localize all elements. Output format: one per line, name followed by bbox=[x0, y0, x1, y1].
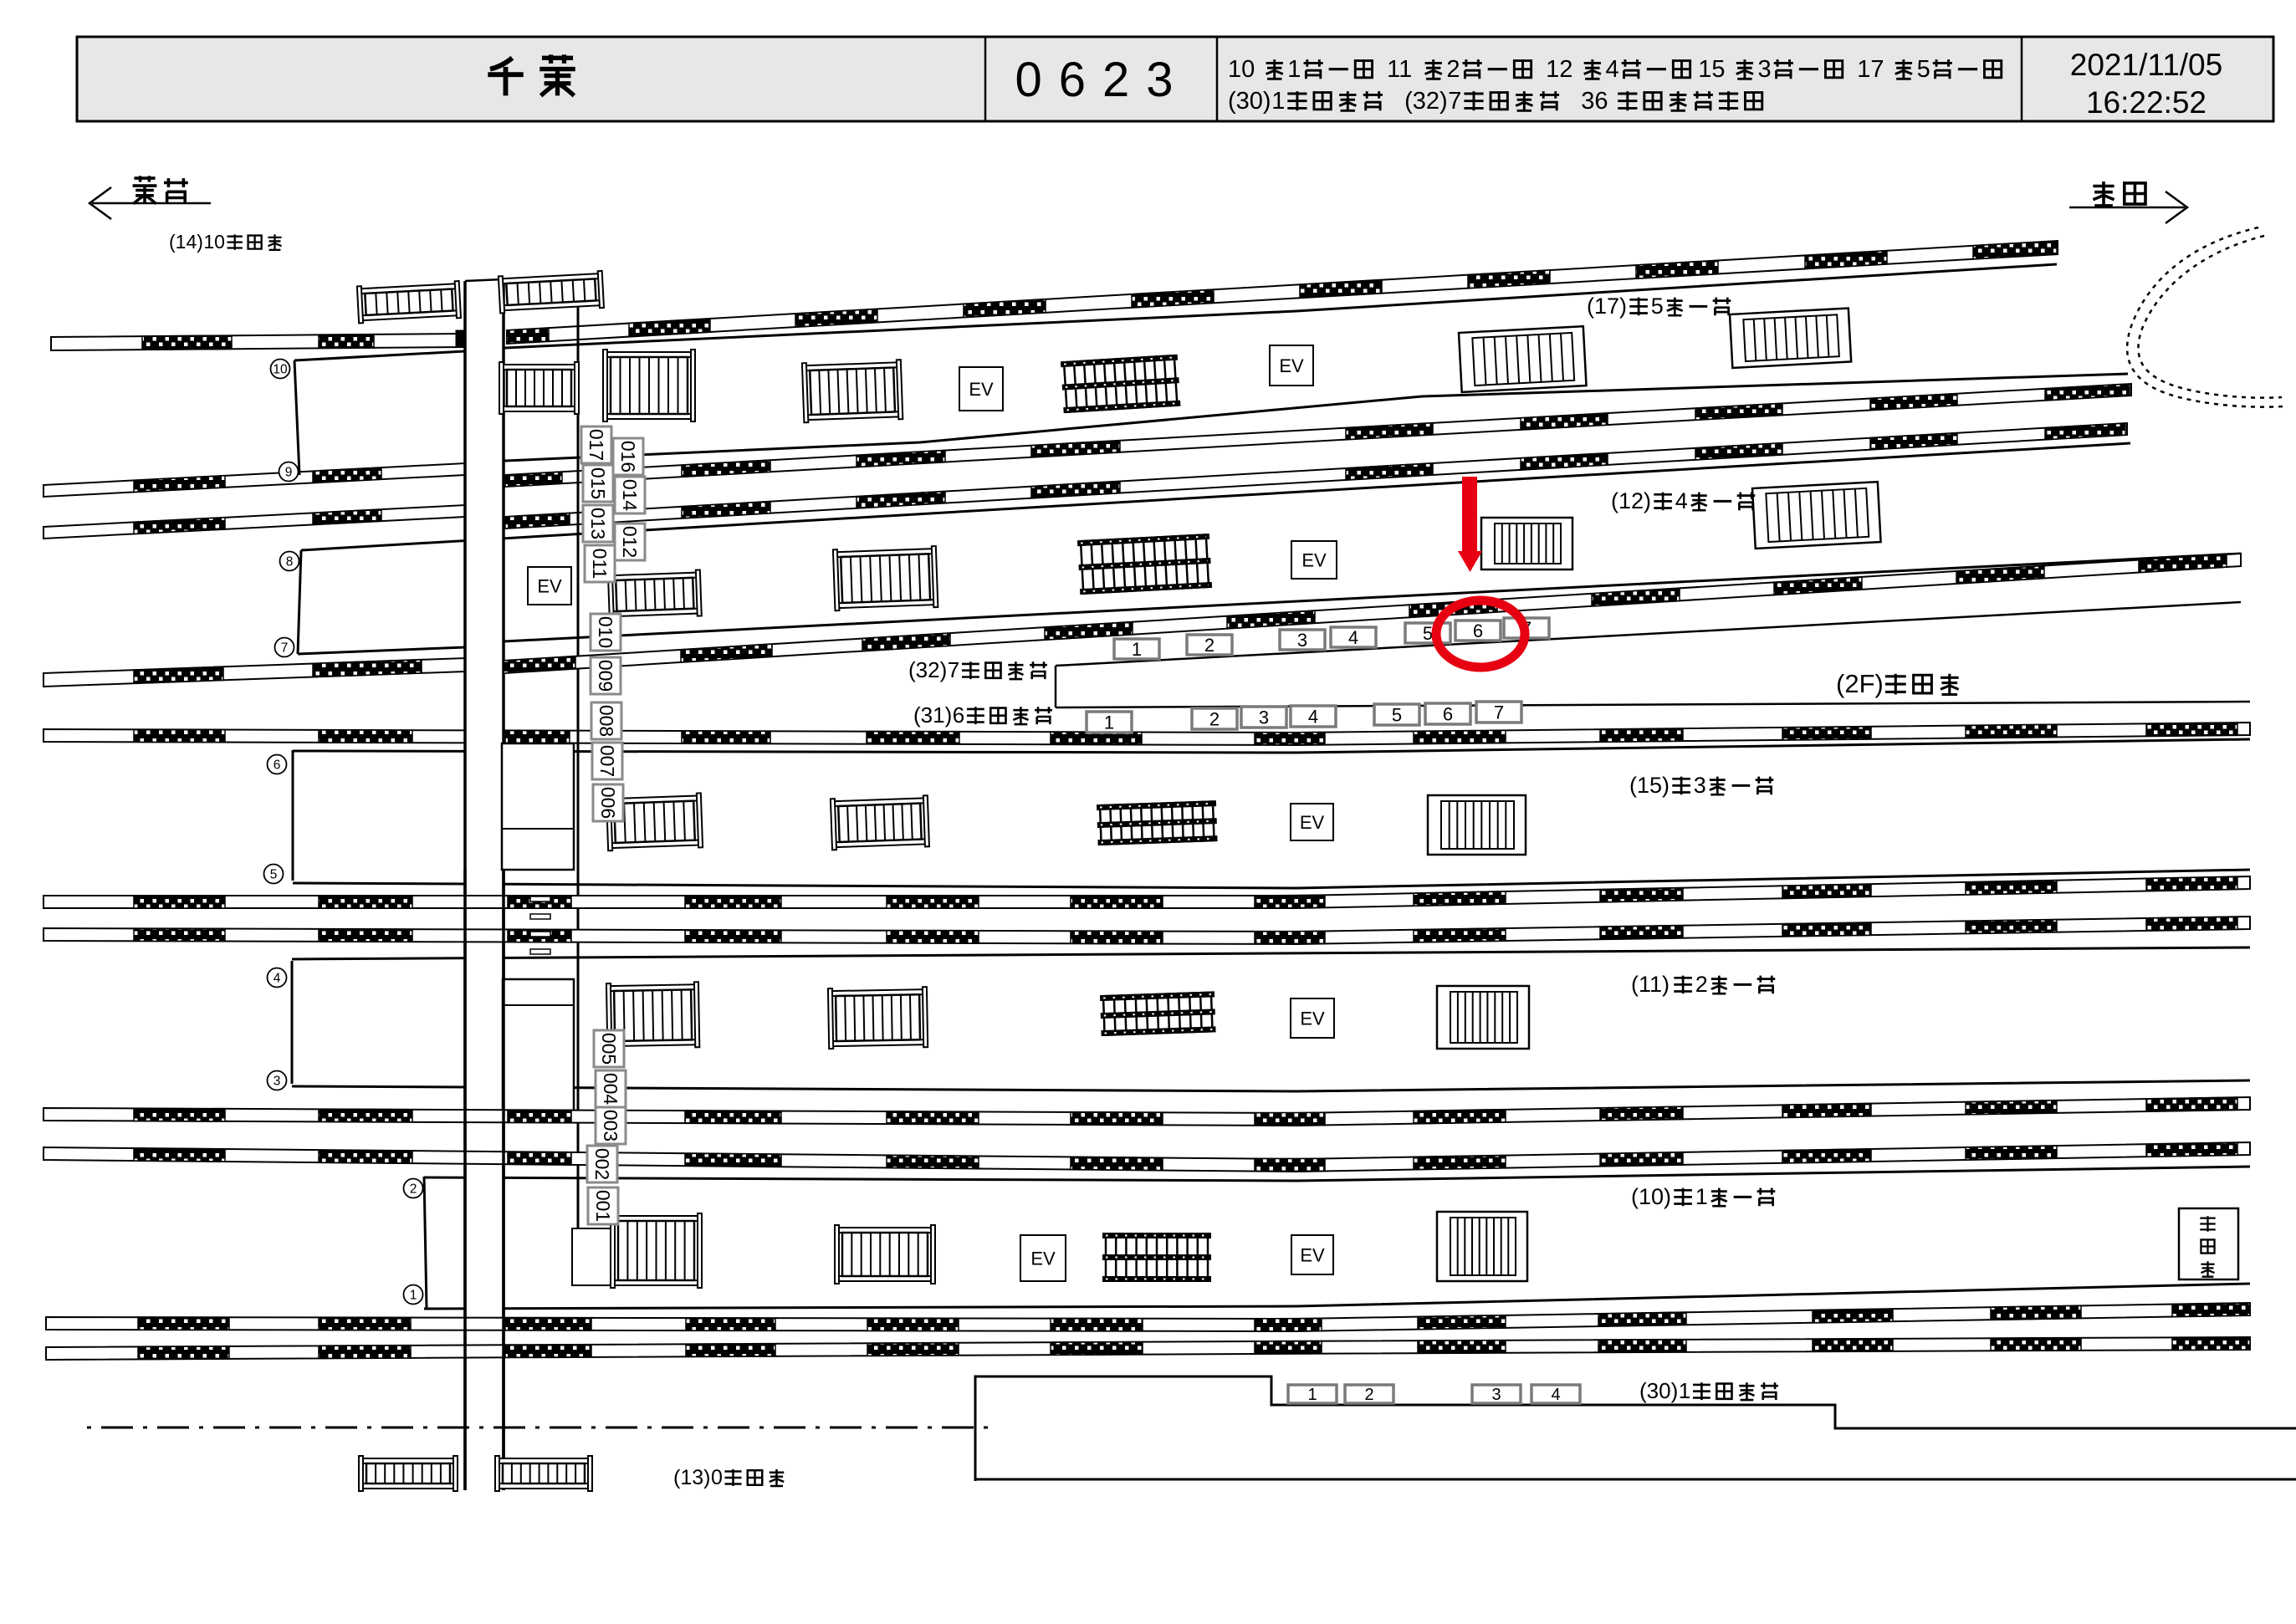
svg-text:015: 015 bbox=[587, 467, 609, 499]
svg-text:(32): (32) bbox=[1404, 88, 1448, 115]
svg-text:2021/11/05: 2021/11/05 bbox=[2070, 48, 2222, 82]
svg-text:EV: EV bbox=[537, 575, 562, 596]
svg-text:001: 001 bbox=[592, 1190, 614, 1222]
svg-text:(11): (11) bbox=[1631, 972, 1670, 997]
svg-text:11: 11 bbox=[1387, 56, 1412, 83]
svg-text:007: 007 bbox=[596, 745, 618, 777]
svg-text:15: 15 bbox=[1698, 56, 1725, 83]
svg-text:008: 008 bbox=[596, 705, 617, 737]
svg-text:(17): (17) bbox=[1587, 294, 1627, 319]
svg-text:013: 013 bbox=[587, 508, 609, 539]
svg-text:012: 012 bbox=[619, 526, 641, 558]
svg-text:7: 7 bbox=[281, 641, 289, 656]
svg-text:3: 3 bbox=[1297, 630, 1307, 651]
svg-text:8: 8 bbox=[286, 555, 294, 569]
svg-text:1: 1 bbox=[1307, 1386, 1317, 1404]
svg-text:014: 014 bbox=[619, 479, 641, 512]
svg-text:1: 1 bbox=[1287, 56, 1301, 83]
svg-text:009: 009 bbox=[595, 660, 616, 692]
svg-text:7: 7 bbox=[1448, 88, 1461, 115]
svg-text:(32): (32) bbox=[908, 657, 947, 682]
svg-text:1: 1 bbox=[410, 1289, 417, 1303]
svg-text:7: 7 bbox=[1494, 702, 1504, 723]
svg-text:3: 3 bbox=[1491, 1386, 1501, 1404]
svg-text:002: 002 bbox=[591, 1148, 613, 1180]
svg-text:4: 4 bbox=[1551, 1386, 1560, 1404]
svg-text:006: 006 bbox=[597, 787, 619, 819]
svg-text:10: 10 bbox=[273, 363, 288, 377]
svg-text:(14): (14) bbox=[169, 231, 203, 253]
svg-text:3: 3 bbox=[1694, 773, 1706, 798]
svg-text:1: 1 bbox=[1104, 712, 1114, 733]
svg-text:EV: EV bbox=[1300, 1008, 1325, 1029]
svg-text:EV: EV bbox=[1279, 355, 1304, 376]
svg-text:EV: EV bbox=[969, 379, 994, 400]
svg-text:2: 2 bbox=[1446, 56, 1460, 83]
svg-text:6: 6 bbox=[953, 702, 964, 728]
svg-text:017: 017 bbox=[586, 429, 607, 461]
svg-text:1: 1 bbox=[1695, 1184, 1708, 1209]
svg-text:5: 5 bbox=[270, 868, 278, 882]
svg-text:6: 6 bbox=[1443, 703, 1453, 724]
svg-text:4: 4 bbox=[274, 972, 281, 986]
svg-text:3: 3 bbox=[1259, 707, 1269, 728]
svg-text:16:22:52: 16:22:52 bbox=[2086, 85, 2207, 120]
svg-text:9: 9 bbox=[285, 466, 293, 480]
svg-text:(30): (30) bbox=[1639, 1378, 1678, 1403]
svg-text:3: 3 bbox=[274, 1075, 281, 1089]
svg-text:004: 004 bbox=[600, 1073, 621, 1106]
svg-text:(31): (31) bbox=[913, 702, 952, 728]
svg-text:1: 1 bbox=[1271, 88, 1285, 115]
svg-text:2: 2 bbox=[1209, 708, 1220, 729]
svg-text:1: 1 bbox=[1679, 1378, 1690, 1403]
svg-text:EV: EV bbox=[1301, 549, 1327, 570]
svg-text:010: 010 bbox=[595, 616, 616, 648]
svg-text:0: 0 bbox=[711, 1466, 723, 1489]
svg-text:(2F): (2F) bbox=[1836, 669, 1884, 698]
svg-text:2: 2 bbox=[1695, 972, 1708, 997]
svg-text:016: 016 bbox=[617, 441, 639, 472]
svg-text:(10): (10) bbox=[1631, 1184, 1671, 1209]
svg-text:EV: EV bbox=[1300, 1244, 1325, 1265]
svg-text:5: 5 bbox=[1423, 623, 1433, 644]
svg-text:3: 3 bbox=[1758, 56, 1772, 83]
svg-text:2: 2 bbox=[410, 1182, 417, 1197]
svg-text:7: 7 bbox=[948, 657, 959, 682]
svg-text:10: 10 bbox=[203, 231, 225, 253]
svg-text:4: 4 bbox=[1308, 706, 1318, 727]
svg-text:5: 5 bbox=[1392, 704, 1402, 725]
svg-text:4: 4 bbox=[1348, 627, 1358, 648]
svg-text:10: 10 bbox=[1228, 56, 1255, 83]
svg-text:17: 17 bbox=[1857, 56, 1884, 83]
svg-text:(15): (15) bbox=[1629, 773, 1670, 798]
svg-text:1: 1 bbox=[1132, 639, 1142, 660]
svg-text:12: 12 bbox=[1546, 56, 1572, 83]
svg-text:003: 003 bbox=[600, 1110, 621, 1141]
svg-text:(30): (30) bbox=[1228, 88, 1271, 115]
svg-text:EV: EV bbox=[1030, 1248, 1056, 1269]
svg-text:2: 2 bbox=[1204, 635, 1214, 656]
svg-text:005: 005 bbox=[598, 1033, 620, 1065]
svg-text:5: 5 bbox=[1651, 294, 1664, 319]
svg-text:6: 6 bbox=[1473, 620, 1483, 641]
svg-text:011: 011 bbox=[589, 549, 611, 580]
svg-text:0623: 0623 bbox=[1015, 53, 1189, 107]
svg-text:6: 6 bbox=[274, 758, 281, 773]
svg-text:(13): (13) bbox=[673, 1466, 710, 1489]
svg-text:4: 4 bbox=[1606, 56, 1619, 83]
svg-text:(12): (12) bbox=[1611, 488, 1651, 513]
svg-text:5: 5 bbox=[1917, 56, 1930, 83]
svg-text:36: 36 bbox=[1581, 88, 1608, 115]
svg-text:EV: EV bbox=[1300, 812, 1325, 833]
svg-text:4: 4 bbox=[1675, 488, 1688, 513]
svg-text:2: 2 bbox=[1364, 1386, 1373, 1404]
